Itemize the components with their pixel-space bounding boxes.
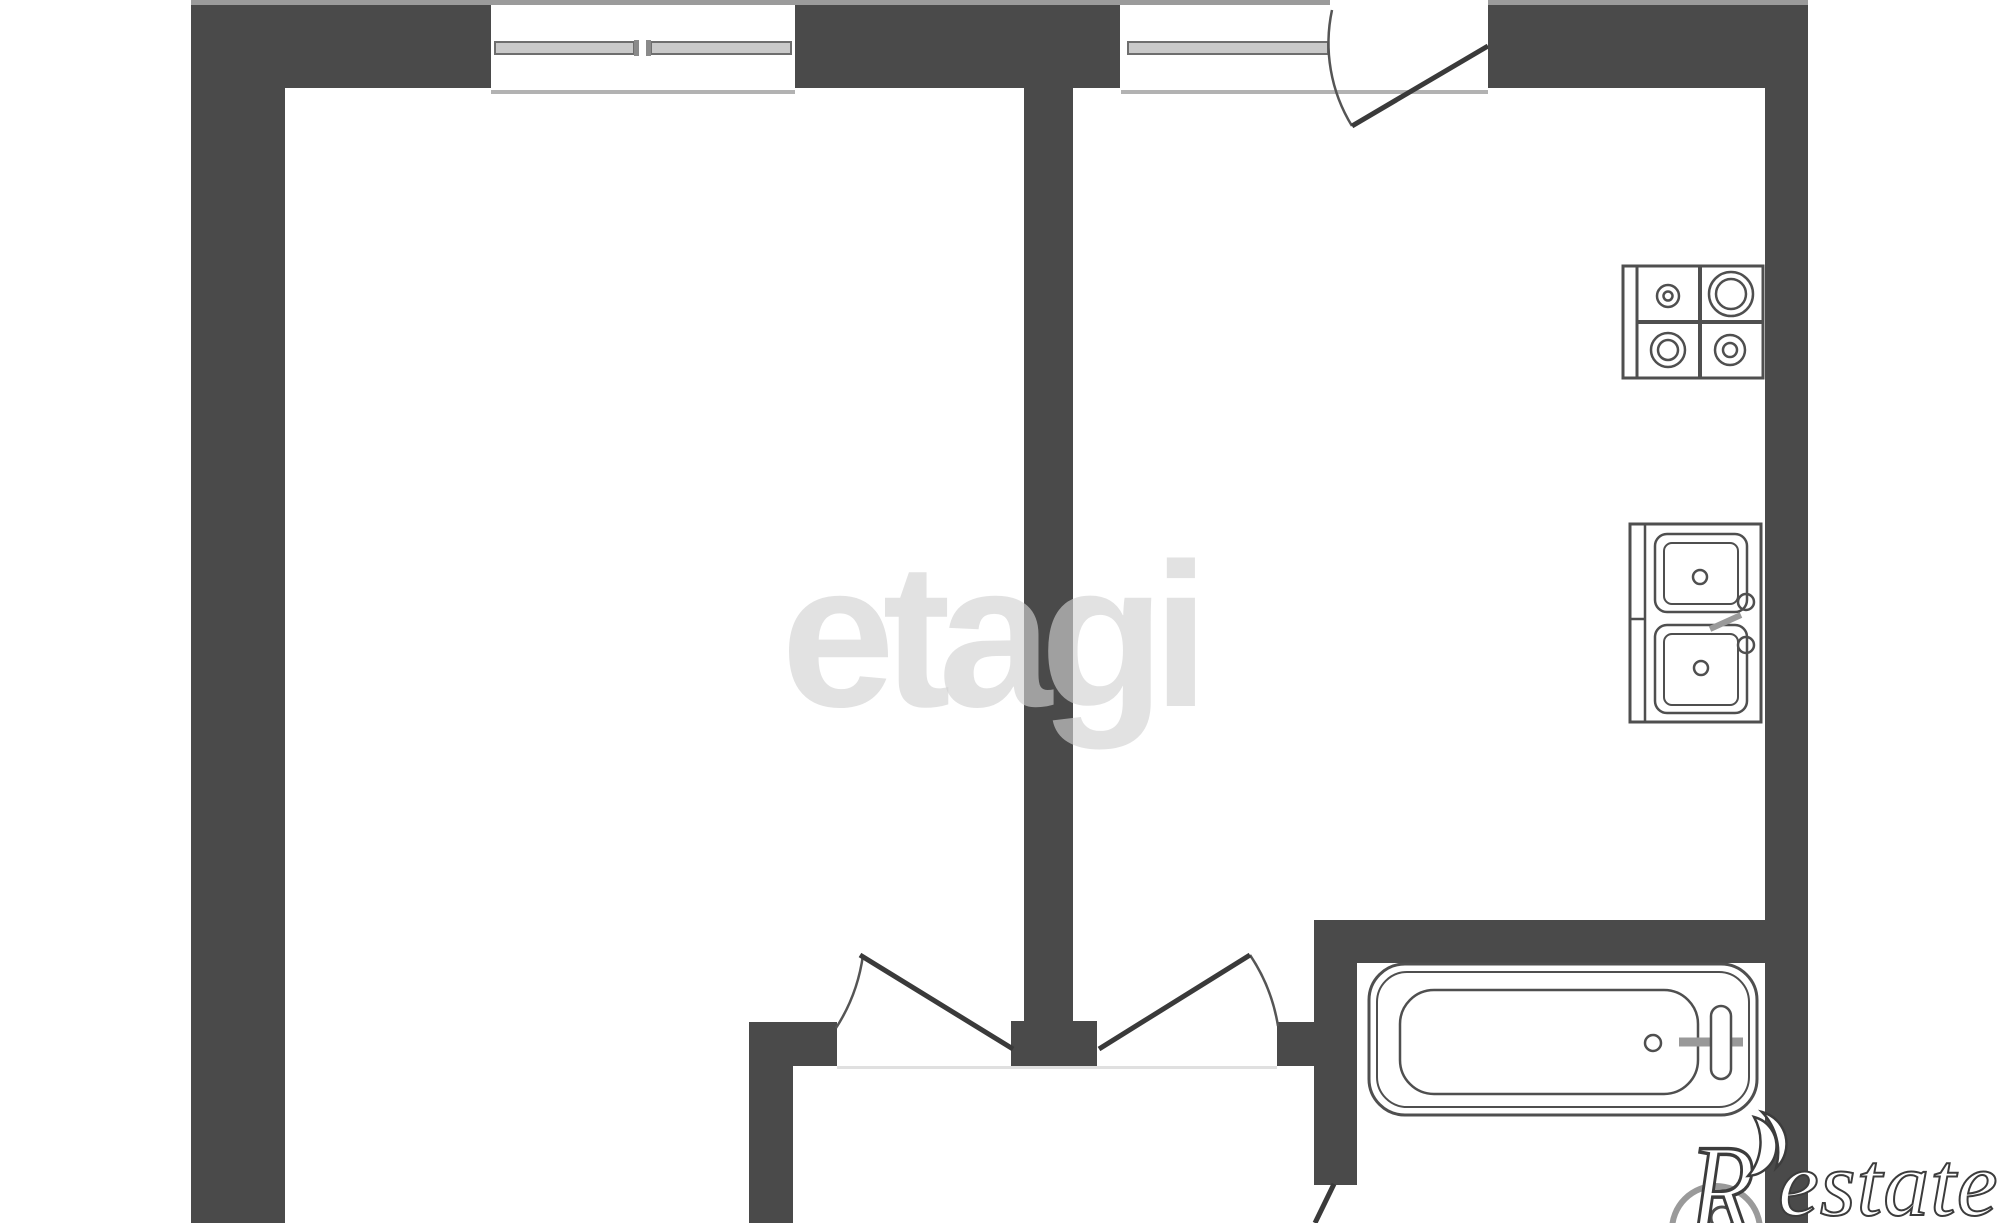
svg-text:etagi: etagi bbox=[781, 521, 1197, 750]
svg-text:R: R bbox=[1688, 1118, 1755, 1223]
svg-text:estate: estate bbox=[1778, 1133, 1999, 1223]
